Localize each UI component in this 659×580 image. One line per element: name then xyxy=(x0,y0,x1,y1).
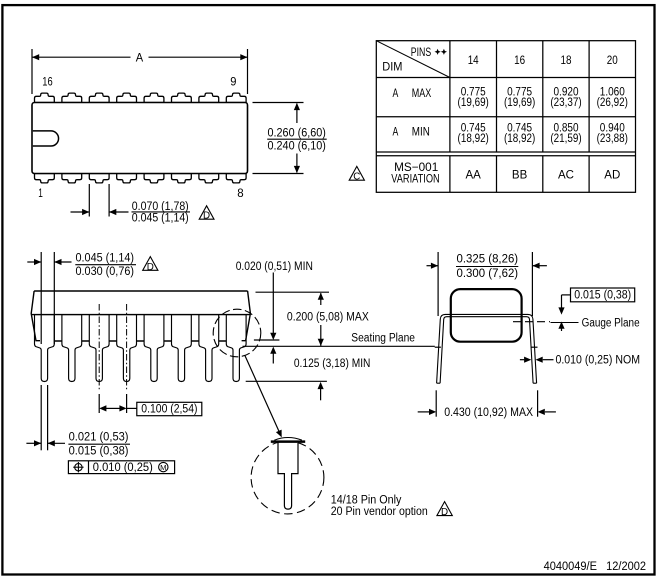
svg-text:20: 20 xyxy=(607,53,618,67)
svg-text:20 Pin vendor option: 20 Pin vendor option xyxy=(331,506,428,518)
svg-text:(26,92): (26,92) xyxy=(597,97,628,109)
svg-text:(23,88): (23,88) xyxy=(597,133,628,145)
svg-text:0.300 (7,62): 0.300 (7,62) xyxy=(457,268,519,280)
svg-text:(21,59): (21,59) xyxy=(550,133,581,145)
svg-text:14: 14 xyxy=(468,53,479,67)
svg-text:4040049/E 12/2002: 4040049/E 12/2002 xyxy=(544,561,646,573)
svg-text:8: 8 xyxy=(237,188,243,200)
svg-text:0.125 (3,18) MIN: 0.125 (3,18) MIN xyxy=(294,358,371,370)
svg-text:0.200 (5,08) MAX: 0.200 (5,08) MAX xyxy=(287,311,369,323)
svg-text:(18,92): (18,92) xyxy=(504,133,535,145)
svg-text:0.020 (0,51) MIN: 0.020 (0,51) MIN xyxy=(236,261,313,273)
svg-text:MAX: MAX xyxy=(412,88,432,100)
svg-text:0.030 (0,76): 0.030 (0,76) xyxy=(76,266,135,278)
svg-text:0.045 (1,14): 0.045 (1,14) xyxy=(76,253,135,265)
svg-text:MS−001: MS−001 xyxy=(394,162,438,174)
svg-text:D: D xyxy=(147,262,154,273)
svg-text:9: 9 xyxy=(230,76,236,88)
svg-text:A: A xyxy=(393,127,399,139)
svg-text:14/18 Pin Only: 14/18 Pin Only xyxy=(331,494,402,506)
svg-text:A: A xyxy=(393,88,399,100)
svg-text:18: 18 xyxy=(561,53,572,67)
svg-text:0.021 (0,53): 0.021 (0,53) xyxy=(69,432,129,444)
svg-text:0.325 (8,26): 0.325 (8,26) xyxy=(457,254,519,266)
svg-text:0.070 (1,78): 0.070 (1,78) xyxy=(132,201,189,213)
svg-text:PINS: PINS xyxy=(411,47,432,59)
svg-text:(23,37): (23,37) xyxy=(550,97,581,109)
svg-text:D: D xyxy=(203,211,210,222)
svg-text:0.010 (0,25) NOM: 0.010 (0,25) NOM xyxy=(556,354,641,366)
svg-text:M: M xyxy=(160,463,166,472)
svg-text:MIN: MIN xyxy=(412,127,430,139)
svg-text:16: 16 xyxy=(42,76,52,88)
svg-text:(19,69): (19,69) xyxy=(458,97,489,109)
svg-text:16: 16 xyxy=(514,53,525,67)
svg-text:0.010 (0,25): 0.010 (0,25) xyxy=(93,462,153,474)
svg-text:D: D xyxy=(441,507,448,518)
svg-text:0.100 (2,54): 0.100 (2,54) xyxy=(141,404,197,416)
svg-text:Seating Plane: Seating Plane xyxy=(351,333,415,345)
svg-text:1: 1 xyxy=(38,188,43,200)
svg-text:BB: BB xyxy=(512,170,528,182)
svg-text:C: C xyxy=(353,172,360,183)
svg-text:0.240 (6,10): 0.240 (6,10) xyxy=(268,141,327,153)
svg-text:A: A xyxy=(136,52,144,64)
svg-text:AD: AD xyxy=(604,170,620,182)
svg-text:0.430 (10,92) MAX: 0.430 (10,92) MAX xyxy=(444,407,533,419)
svg-text:0.015 (0,38): 0.015 (0,38) xyxy=(69,446,129,458)
svg-text:(18,92): (18,92) xyxy=(458,133,489,145)
svg-text:Gauge Plane: Gauge Plane xyxy=(582,317,640,329)
svg-text:0.260 (6,60): 0.260 (6,60) xyxy=(268,128,327,140)
svg-text:0.045 (1,14): 0.045 (1,14) xyxy=(132,212,189,224)
svg-text:(19,69): (19,69) xyxy=(504,97,535,109)
svg-text:VARIATION: VARIATION xyxy=(391,173,439,185)
svg-text:AA: AA xyxy=(466,170,482,182)
svg-text:AC: AC xyxy=(558,170,574,182)
svg-text:0.015 (0,38): 0.015 (0,38) xyxy=(574,290,631,302)
svg-text:DIM: DIM xyxy=(382,61,402,73)
